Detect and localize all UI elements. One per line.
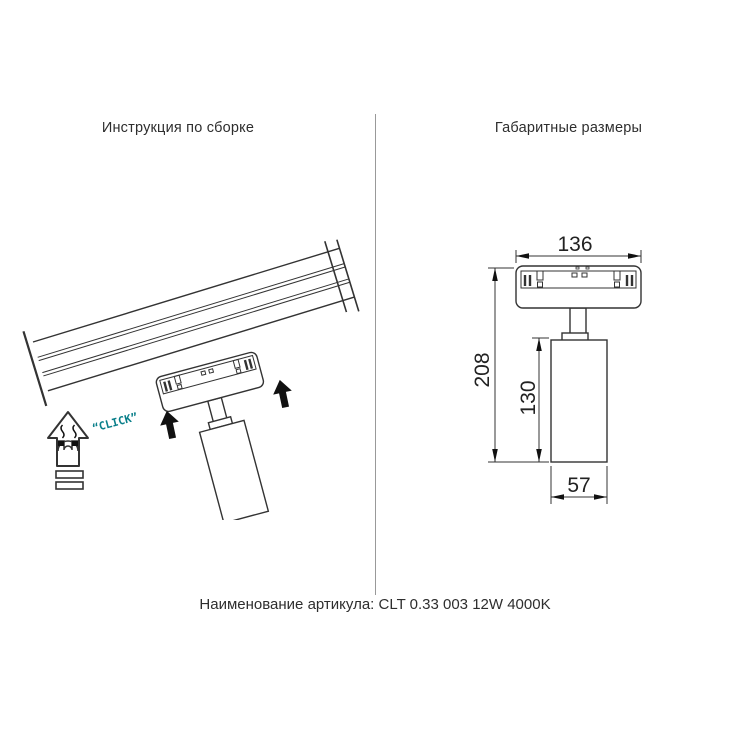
dimension-body-height: 130 [517, 338, 549, 462]
dimension-adapter-width: 136 [516, 233, 641, 263]
dim-label-57: 57 [567, 474, 590, 497]
article-caption: Наименование артикула: CLT 0.33 003 12W … [0, 596, 750, 613]
fixture-cylinder-body [200, 420, 269, 520]
up-arrow-icon [270, 378, 294, 409]
up-arrow-icon [157, 409, 181, 440]
click-label: “CLICK” [91, 410, 139, 435]
dimension-body-diameter: 57 [551, 466, 607, 504]
light-fixture [155, 351, 296, 520]
track-end-cap-left [23, 331, 46, 406]
track-end-cap-right [337, 240, 359, 312]
dim-label-208: 208 [471, 352, 494, 387]
dimensions-drawing: 136 208 130 57 [440, 230, 700, 520]
magnet-arrow-icon [48, 412, 88, 489]
track-slot-bar [56, 471, 83, 478]
fixture-stem [570, 308, 586, 334]
fixture-cylinder-body [551, 340, 607, 462]
assembly-panel-title: Инструкция по сборке [0, 120, 356, 136]
track-end-cap-right [325, 241, 347, 312]
assembly-diagram: “CLICK” [0, 230, 380, 520]
article-label: Наименование артикула: [199, 596, 374, 613]
track-slot-bar [56, 482, 83, 489]
page: Инструкция по сборке Габаритные размеры [0, 0, 750, 750]
dim-label-130: 130 [517, 380, 540, 415]
dim-label-136: 136 [557, 233, 592, 256]
fixture-track-adapter [516, 266, 641, 308]
dimensions-panel-title: Габаритные размеры [396, 120, 741, 136]
article-value: CLT 0.33 003 12W 4000K [379, 596, 551, 613]
fixture-side-view [516, 266, 641, 462]
